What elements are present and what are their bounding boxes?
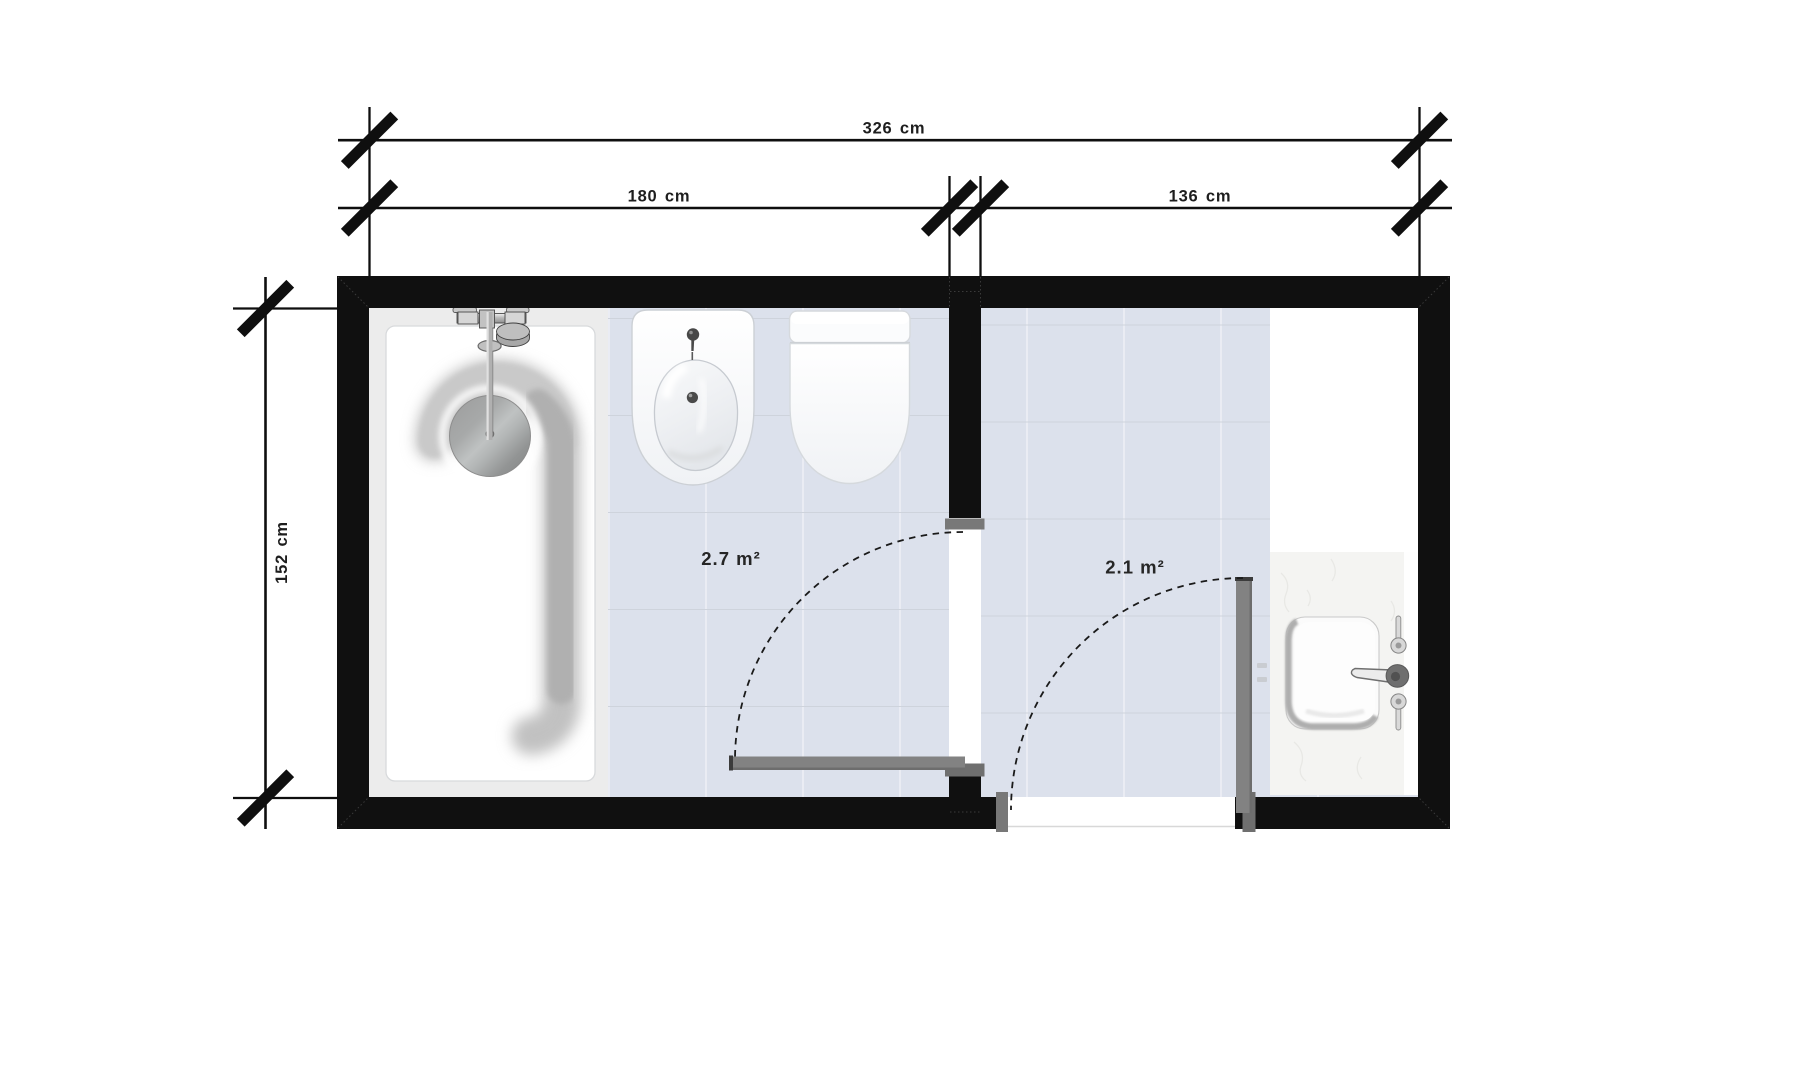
- svg-text:180 cm: 180 cm: [628, 188, 691, 206]
- svg-text:2.1 m²: 2.1 m²: [1105, 557, 1164, 578]
- svg-text:326 cm: 326 cm: [863, 120, 926, 138]
- svg-text:152 cm: 152 cm: [273, 521, 291, 584]
- svg-text:2.7 m²: 2.7 m²: [701, 548, 760, 569]
- svg-text:136 cm: 136 cm: [1169, 188, 1232, 206]
